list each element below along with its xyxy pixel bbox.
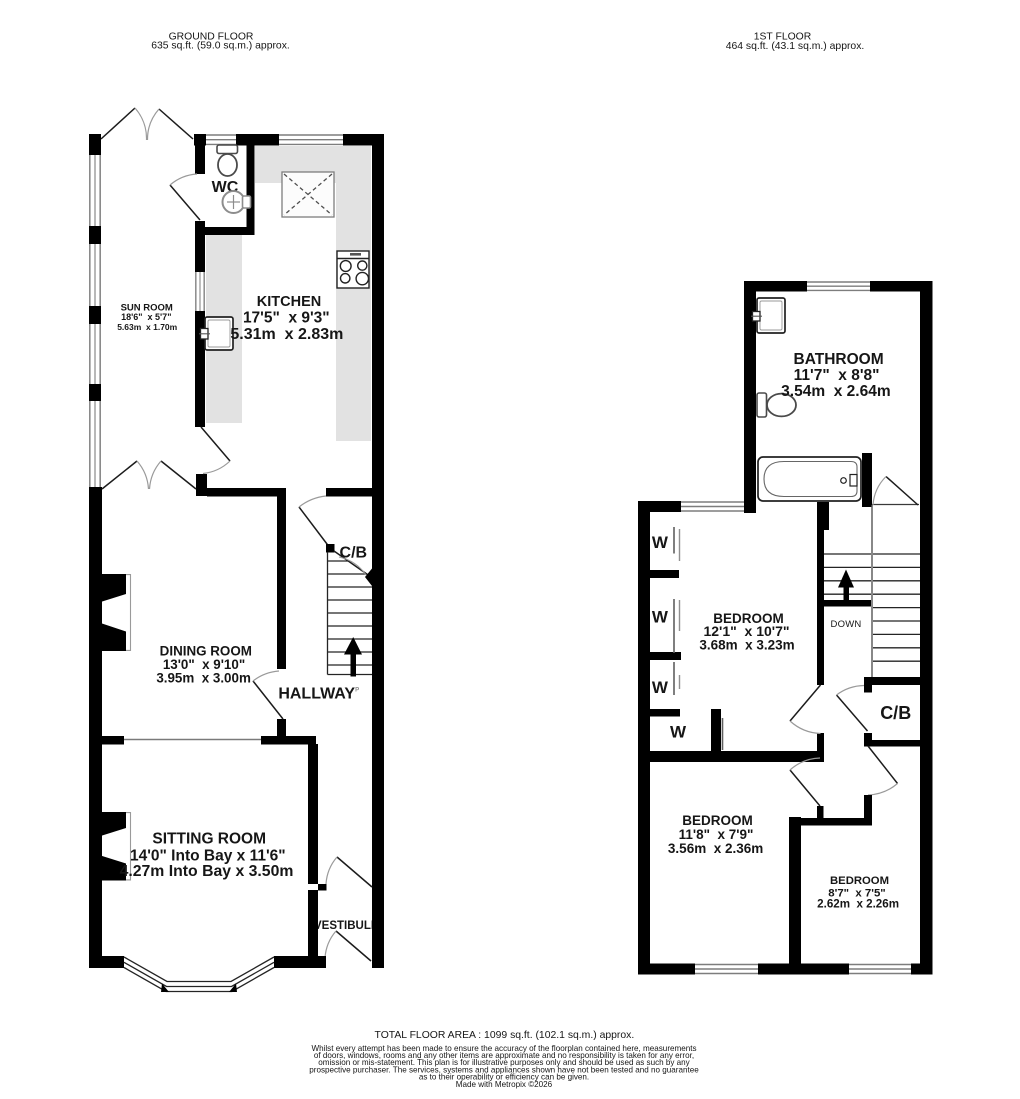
svg-text:W: W [652,533,669,552]
svg-text:464 sq.ft. (43.1 sq.m.) approx: 464 sq.ft. (43.1 sq.m.) approx. [726,41,865,52]
svg-text:17'5" x 9'3": 17'5" x 9'3" [243,309,330,326]
svg-text:HALLWAYP: HALLWAYP [278,686,359,703]
svg-text:DOWN: DOWN [831,619,862,630]
svg-text:C/B: C/B [340,545,368,562]
svg-text:5.31m x 2.83m: 5.31m x 2.83m [230,326,343,343]
svg-text:18'6" x 5'7": 18'6" x 5'7" [121,312,171,322]
svg-text:KITCHEN: KITCHEN [257,294,321,310]
svg-text:14'0" Into Bay x 11'6": 14'0" Into Bay x 11'6" [130,847,286,864]
svg-text:C/B: C/B [880,703,911,723]
svg-text:2.62m x 2.26m: 2.62m x 2.26m [817,898,899,911]
svg-text:Made with Metropix ©2026: Made with Metropix ©2026 [456,1080,553,1089]
svg-text:W: W [652,608,669,627]
svg-text:W: W [670,723,687,742]
svg-text:VESTIBULE: VESTIBULE [314,920,379,932]
svg-text:3.56m x 2.36m: 3.56m x 2.36m [668,841,763,856]
svg-text:SITTING ROOM: SITTING ROOM [152,831,266,848]
svg-text:BATHROOM: BATHROOM [794,351,884,368]
svg-text:3.54m x 2.64m: 3.54m x 2.64m [781,383,890,400]
svg-text:3.68m x 3.23m: 3.68m x 3.23m [699,638,794,653]
svg-text:BEDROOM: BEDROOM [830,875,889,887]
svg-text:4.27m Into Bay x 3.50m: 4.27m Into Bay x 3.50m [120,863,294,880]
svg-text:11'8" x 7'9": 11'8" x 7'9" [679,827,754,842]
svg-text:TOTAL FLOOR AREA : 1099 sq.ft.: TOTAL FLOOR AREA : 1099 sq.ft. (102.1 sq… [375,1030,635,1041]
svg-text:W: W [652,678,669,697]
svg-text:3.95m x 3.00m: 3.95m x 3.00m [156,671,251,686]
svg-text:635 sq.ft. (59.0 sq.m.) approx: 635 sq.ft. (59.0 sq.m.) approx. [151,40,290,51]
svg-text:11'7" x 8'8": 11'7" x 8'8" [794,367,880,384]
svg-text:BEDROOM: BEDROOM [682,813,753,828]
svg-text:5.63m x 1.70m: 5.63m x 1.70m [117,322,177,332]
